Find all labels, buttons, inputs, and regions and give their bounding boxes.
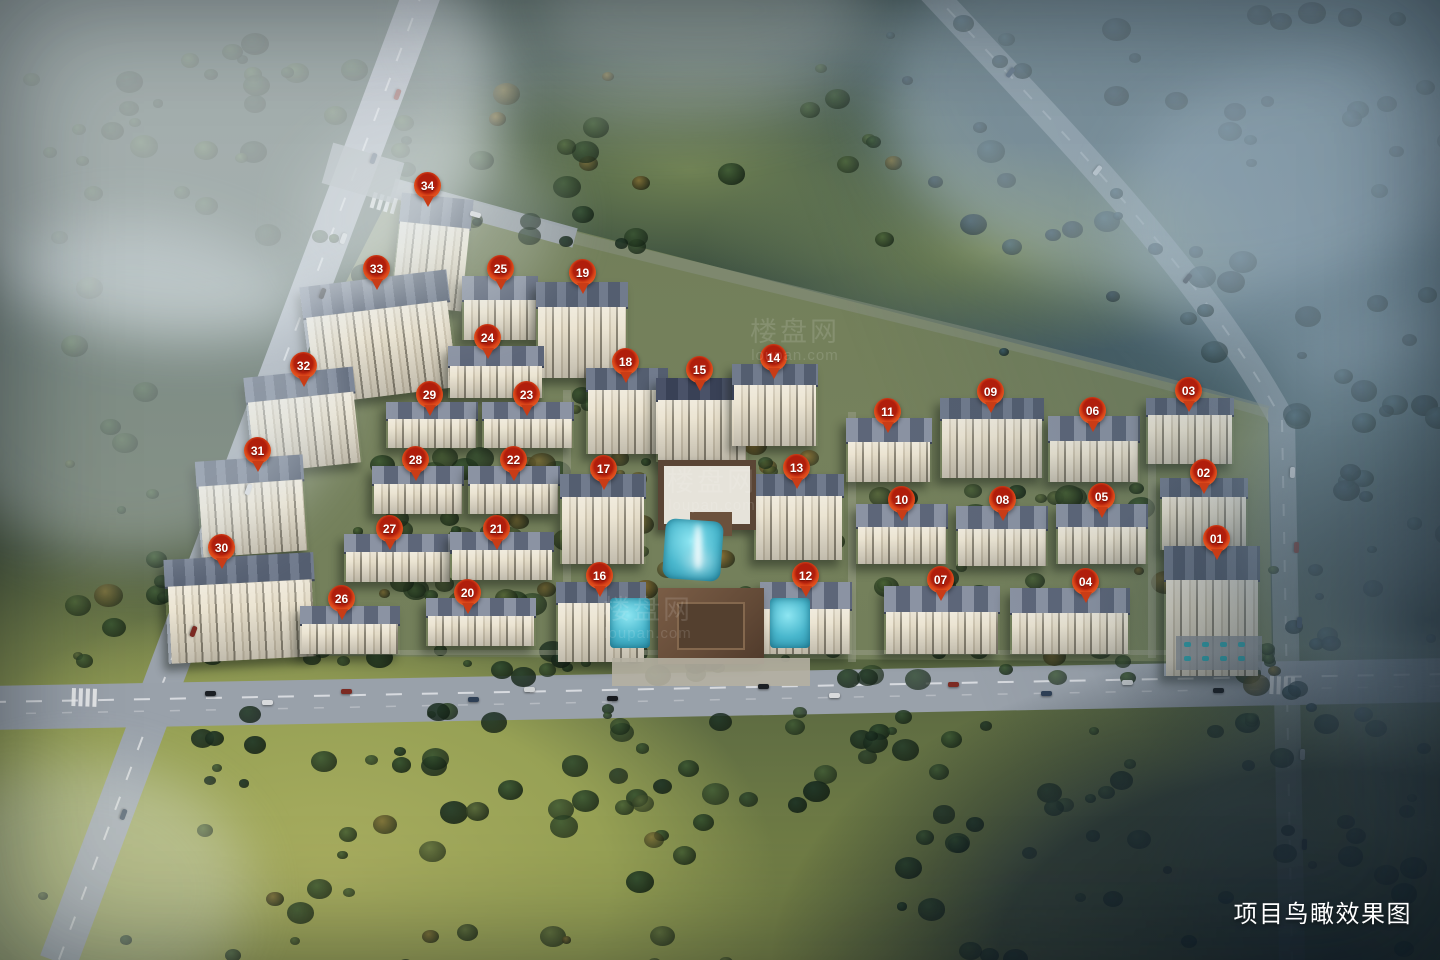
building-marker-23: 23 bbox=[513, 381, 540, 408]
building-marker-28: 28 bbox=[402, 446, 429, 473]
building-marker-label: 01 bbox=[1210, 532, 1223, 546]
building-marker-label: 06 bbox=[1086, 404, 1099, 418]
building-marker-label: 12 bbox=[799, 569, 812, 583]
building-markers-layer: 0102030405060708091011121314151617181920… bbox=[0, 0, 1440, 960]
building-marker-13: 13 bbox=[783, 454, 810, 481]
building-marker-08: 08 bbox=[989, 486, 1016, 513]
building-marker-21: 21 bbox=[483, 515, 510, 542]
building-marker-label: 27 bbox=[383, 522, 396, 536]
building-marker-label: 13 bbox=[790, 461, 803, 475]
building-marker-label: 09 bbox=[984, 385, 997, 399]
building-marker-label: 10 bbox=[895, 493, 908, 507]
building-marker-label: 30 bbox=[215, 541, 228, 555]
building-marker-26: 26 bbox=[328, 585, 355, 612]
building-marker-label: 15 bbox=[693, 363, 706, 377]
building-marker-12: 12 bbox=[792, 562, 819, 589]
aerial-render: 0102030405060708091011121314151617181920… bbox=[0, 0, 1440, 960]
building-marker-15: 15 bbox=[686, 356, 713, 383]
building-marker-01: 01 bbox=[1203, 525, 1230, 552]
building-marker-label: 03 bbox=[1182, 384, 1195, 398]
building-marker-label: 14 bbox=[767, 351, 780, 365]
building-marker-19: 19 bbox=[569, 259, 596, 286]
building-marker-09: 09 bbox=[977, 378, 1004, 405]
building-marker-33: 33 bbox=[363, 255, 390, 282]
building-marker-label: 29 bbox=[423, 388, 436, 402]
building-marker-22: 22 bbox=[500, 446, 527, 473]
building-marker-label: 34 bbox=[421, 179, 434, 193]
building-marker-label: 21 bbox=[490, 522, 503, 536]
building-marker-06: 06 bbox=[1079, 397, 1106, 424]
building-marker-17: 17 bbox=[590, 455, 617, 482]
building-marker-16: 16 bbox=[586, 562, 613, 589]
building-marker-label: 25 bbox=[494, 262, 507, 276]
building-marker-27: 27 bbox=[376, 515, 403, 542]
building-marker-label: 31 bbox=[251, 444, 264, 458]
building-marker-31: 31 bbox=[244, 437, 271, 464]
building-marker-label: 07 bbox=[934, 573, 947, 587]
building-marker-label: 05 bbox=[1095, 490, 1108, 504]
building-marker-05: 05 bbox=[1088, 483, 1115, 510]
building-marker-14: 14 bbox=[760, 344, 787, 371]
building-marker-24: 24 bbox=[474, 324, 501, 351]
building-marker-30: 30 bbox=[208, 534, 235, 561]
building-marker-label: 24 bbox=[481, 331, 494, 345]
building-marker-07: 07 bbox=[927, 566, 954, 593]
building-marker-label: 18 bbox=[619, 355, 632, 369]
building-marker-32: 32 bbox=[290, 352, 317, 379]
building-marker-label: 26 bbox=[335, 592, 348, 606]
building-marker-34: 34 bbox=[414, 172, 441, 199]
building-marker-04: 04 bbox=[1072, 568, 1099, 595]
building-marker-29: 29 bbox=[416, 381, 443, 408]
building-marker-20: 20 bbox=[454, 579, 481, 606]
building-marker-10: 10 bbox=[888, 486, 915, 513]
building-marker-label: 17 bbox=[597, 462, 610, 476]
building-marker-label: 28 bbox=[409, 453, 422, 467]
building-marker-label: 33 bbox=[370, 262, 383, 276]
building-marker-label: 08 bbox=[996, 493, 1009, 507]
building-marker-11: 11 bbox=[874, 398, 901, 425]
building-marker-label: 20 bbox=[461, 586, 474, 600]
building-marker-label: 02 bbox=[1197, 466, 1210, 480]
building-marker-02: 02 bbox=[1190, 459, 1217, 486]
image-caption: 项目鸟瞰效果图 bbox=[1234, 894, 1413, 929]
building-marker-label: 04 bbox=[1079, 575, 1092, 589]
building-marker-label: 32 bbox=[297, 359, 310, 373]
building-marker-label: 19 bbox=[576, 266, 589, 280]
building-marker-label: 22 bbox=[507, 453, 520, 467]
building-marker-label: 11 bbox=[881, 405, 894, 419]
building-marker-25: 25 bbox=[487, 255, 514, 282]
building-marker-03: 03 bbox=[1175, 377, 1202, 404]
building-marker-18: 18 bbox=[612, 348, 639, 375]
building-marker-label: 16 bbox=[593, 569, 606, 583]
building-marker-label: 23 bbox=[520, 388, 533, 402]
